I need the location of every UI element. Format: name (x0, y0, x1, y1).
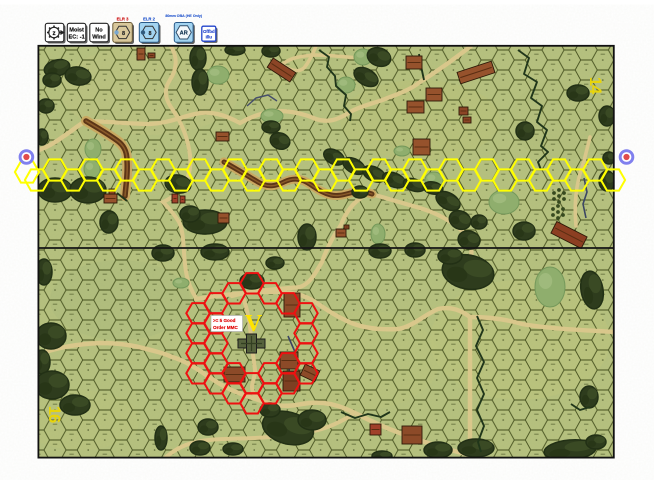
svg-text:ELR 2: ELR 2 (143, 17, 156, 22)
svg-text:EC: -1: EC: -1 (69, 35, 85, 41)
svg-text:Order MMC: Order MMC (213, 325, 238, 330)
svg-text:Wind: Wind (92, 35, 106, 41)
svg-text:14: 14 (586, 77, 604, 95)
svg-text:ELR 3: ELR 3 (117, 17, 130, 22)
svg-text:No: No (95, 28, 103, 34)
svg-text:Offbd: Offbd (203, 29, 215, 34)
svg-text:8: 8 (122, 31, 125, 37)
svg-text:Moist: Moist (69, 28, 84, 34)
svg-text:>= 5 Good: >= 5 Good (213, 318, 236, 323)
svg-text:Illu: Illu (206, 34, 213, 39)
svg-text:z: z (52, 30, 55, 37)
svg-text:80mm OBA (HE Only): 80mm OBA (HE Only) (165, 14, 202, 18)
svg-text:16: 16 (45, 406, 63, 423)
svg-text:8: 8 (148, 31, 151, 37)
svg-text:V: V (245, 311, 263, 337)
svg-text:AR: AR (180, 31, 188, 37)
